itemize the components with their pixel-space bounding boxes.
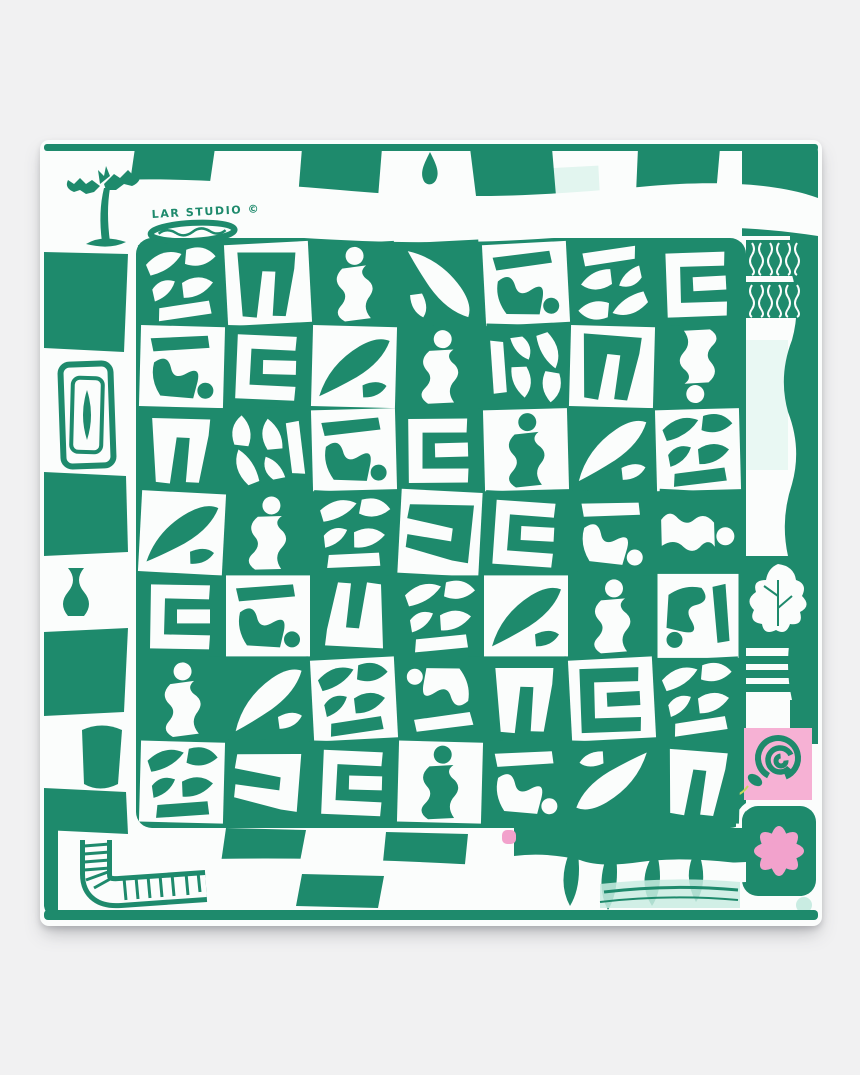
checker-border-left [44, 252, 128, 834]
cutout-tile [311, 741, 397, 824]
oak-leaf-block [742, 556, 814, 648]
cutout-tile [139, 741, 225, 824]
cutout-tile [482, 241, 570, 326]
product-photo: LAR STUDIO © [0, 0, 860, 1075]
cutout-tile [568, 490, 656, 575]
cutout-tile [484, 575, 568, 656]
cutout-tile [397, 325, 483, 408]
water-droplet-icon [422, 152, 438, 184]
cutout-tile [655, 489, 740, 577]
cutout-tile [225, 325, 311, 408]
cutout-tile [396, 656, 484, 741]
cutout-tile [310, 490, 398, 575]
cutout-tile [310, 241, 398, 326]
cutout-tile [312, 575, 396, 656]
snake-panel [737, 728, 812, 800]
cutout-tile [655, 325, 741, 408]
cutout-tile [655, 741, 741, 824]
cutout-tile [310, 656, 398, 741]
cutout-grid [138, 239, 742, 825]
cutout-tile [311, 325, 397, 408]
checker-border-bottom [44, 828, 818, 920]
cutout-tile [224, 490, 312, 575]
cutout-tile [654, 656, 742, 741]
cutout-tile [483, 741, 569, 824]
cutout-tile [484, 324, 567, 410]
cutout-tile [655, 408, 741, 491]
cutout-tile [398, 575, 482, 656]
stripe-block [746, 656, 812, 692]
cutout-tile [569, 741, 655, 824]
cutout-tile [482, 490, 570, 575]
scarf-artwork: LAR STUDIO © [40, 140, 822, 926]
cutout-tile [138, 490, 226, 575]
cutout-tile [140, 575, 224, 656]
cutout-tile [226, 407, 309, 493]
cutout-tile [568, 656, 656, 741]
cutout-tile [654, 241, 742, 326]
cutout-tile [139, 325, 225, 408]
checker-border-right [737, 236, 819, 920]
cutout-tile [224, 656, 312, 741]
cutout-tile [568, 241, 656, 326]
cutout-tile [226, 575, 310, 656]
cutout-tile [139, 408, 225, 491]
scarf-image: LAR STUDIO © [40, 140, 822, 926]
bottom-green-band [514, 828, 746, 865]
cutout-tile [482, 656, 570, 741]
cutout-tile [658, 574, 739, 658]
cutout-tile [570, 575, 654, 656]
cutout-tile [397, 489, 482, 577]
cutout-tile [138, 241, 226, 326]
cutout-tile [397, 741, 483, 824]
cutout-tile [483, 408, 569, 491]
pink-dot [502, 830, 516, 844]
cutout-tile [224, 241, 312, 326]
mint-band [600, 879, 740, 908]
cutout-tile [397, 408, 483, 491]
cutout-tile [226, 739, 309, 825]
cutout-tile [138, 656, 226, 741]
cutout-tile [569, 325, 655, 408]
concentric-frame-icon [60, 363, 114, 467]
cutout-tile [569, 408, 655, 491]
cutout-tile [311, 408, 397, 491]
cutout-tile [397, 239, 482, 327]
